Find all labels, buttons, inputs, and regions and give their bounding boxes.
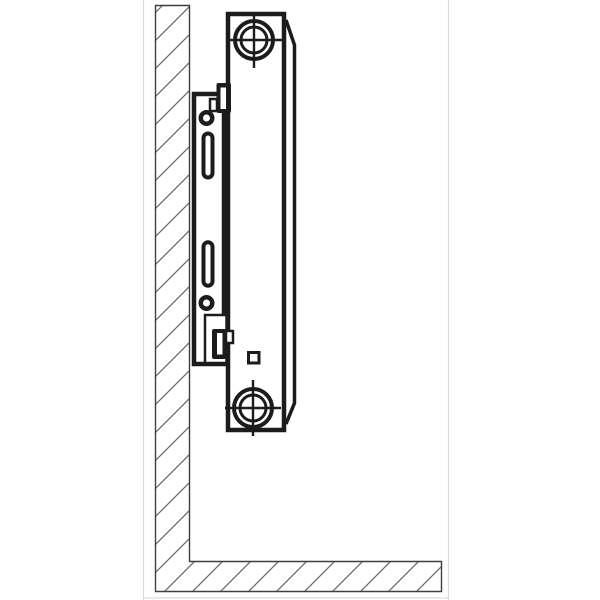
- hook-foot: [210, 99, 217, 111]
- radiator-back-edge: [286, 20, 295, 424]
- radiator-panel: [228, 14, 284, 430]
- drawing-canvas: [0, 0, 600, 600]
- bracket-slot-bottom: [204, 242, 213, 286]
- bracket-slot-top: [204, 134, 213, 178]
- bracket-hook-top: [210, 83, 231, 113]
- radiator-mounting-diagram: [0, 0, 600, 600]
- hook-slot: [221, 88, 227, 110]
- radiator-side-view: [225, 12, 295, 436]
- drain-plug-square: [249, 353, 260, 364]
